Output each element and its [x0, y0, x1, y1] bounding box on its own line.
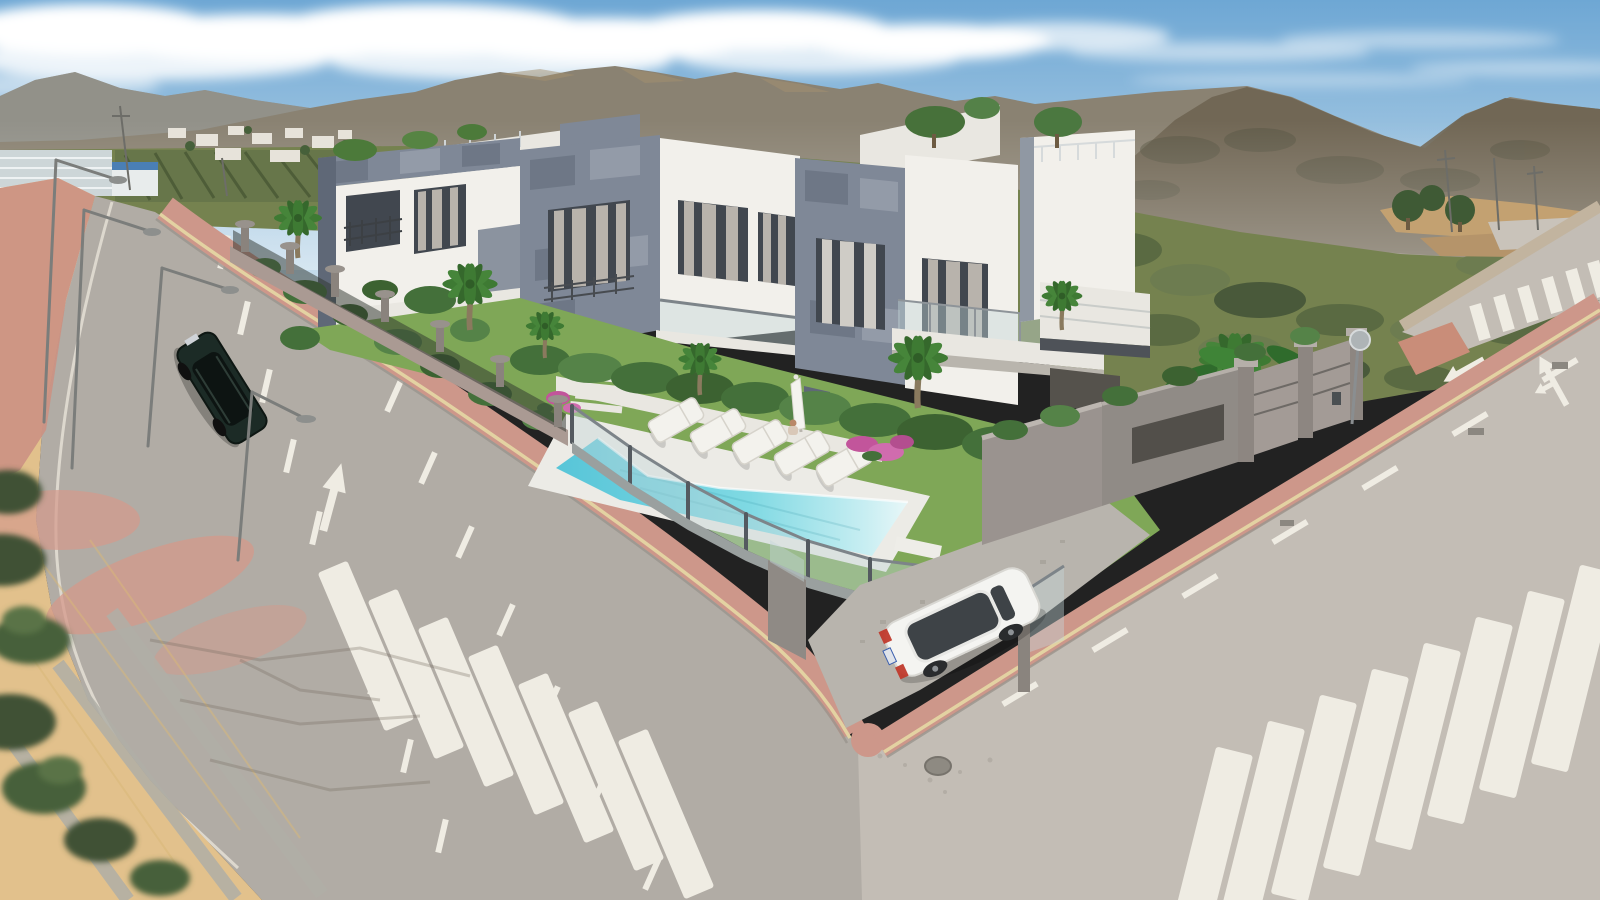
manhole-cover — [925, 757, 951, 775]
wall-infill — [1313, 340, 1350, 432]
render-image — [0, 0, 1600, 900]
wall-infill — [1254, 358, 1298, 455]
slate-strip — [1020, 137, 1034, 322]
palm-tree — [888, 333, 948, 408]
scene-canvas — [0, 0, 1600, 900]
